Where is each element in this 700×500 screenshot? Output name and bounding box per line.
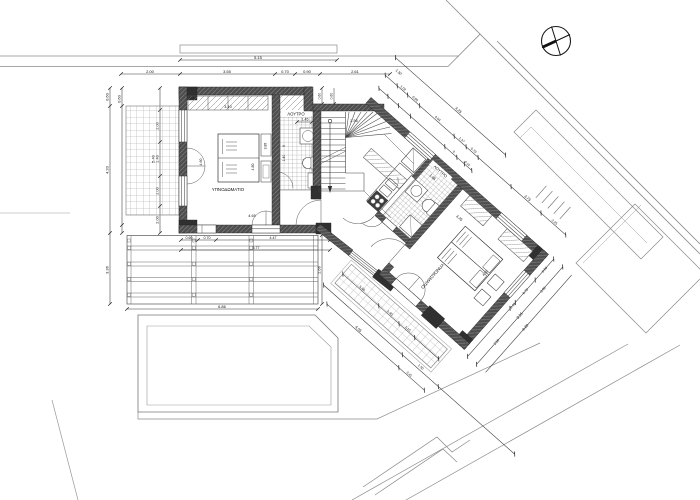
svg-text:0.60: 0.60 (318, 93, 322, 100)
svg-text:3.10: 3.10 (224, 105, 231, 109)
svg-text:9: 9 (282, 145, 286, 147)
svg-text:ΥΠΝΟΔΩΜΑΤΙΟ: ΥΠΝΟΔΩΜΑΤΙΟ (212, 187, 245, 192)
svg-text:0.60: 0.60 (330, 93, 334, 100)
svg-text:2.56: 2.56 (350, 119, 357, 123)
svg-text:4.60: 4.60 (199, 159, 203, 166)
svg-text:1.40: 1.40 (282, 155, 286, 162)
svg-text:3.55: 3.55 (223, 69, 232, 74)
svg-text:2.66: 2.66 (317, 265, 322, 274)
svg-text:4.20: 4.20 (105, 165, 110, 174)
svg-text:4.80: 4.80 (251, 164, 255, 171)
svg-text:0.70: 0.70 (281, 69, 290, 74)
svg-text:2.00: 2.00 (146, 69, 155, 74)
svg-text:0.70: 0.70 (204, 236, 211, 240)
svg-text:5.15: 5.15 (254, 55, 263, 60)
svg-text:3.36: 3.36 (105, 265, 110, 274)
svg-text:0.60: 0.60 (105, 92, 110, 101)
svg-text:3.85: 3.85 (264, 143, 268, 150)
svg-text:4.65: 4.65 (248, 214, 255, 218)
svg-text:0.90: 0.90 (303, 69, 312, 74)
svg-text:6.86: 6.86 (218, 304, 227, 309)
svg-text:5.77: 5.77 (253, 246, 260, 250)
svg-text:2.00: 2.00 (156, 216, 160, 223)
svg-text:0.60: 0.60 (186, 236, 193, 240)
svg-text:ΛΟΥΤΡΟ: ΛΟΥΤΡΟ (287, 112, 305, 117)
svg-text:2.61: 2.61 (351, 69, 360, 74)
svg-text:1.45: 1.45 (302, 118, 309, 122)
svg-text:4.47: 4.47 (270, 236, 277, 240)
svg-text:0.60: 0.60 (117, 94, 122, 103)
